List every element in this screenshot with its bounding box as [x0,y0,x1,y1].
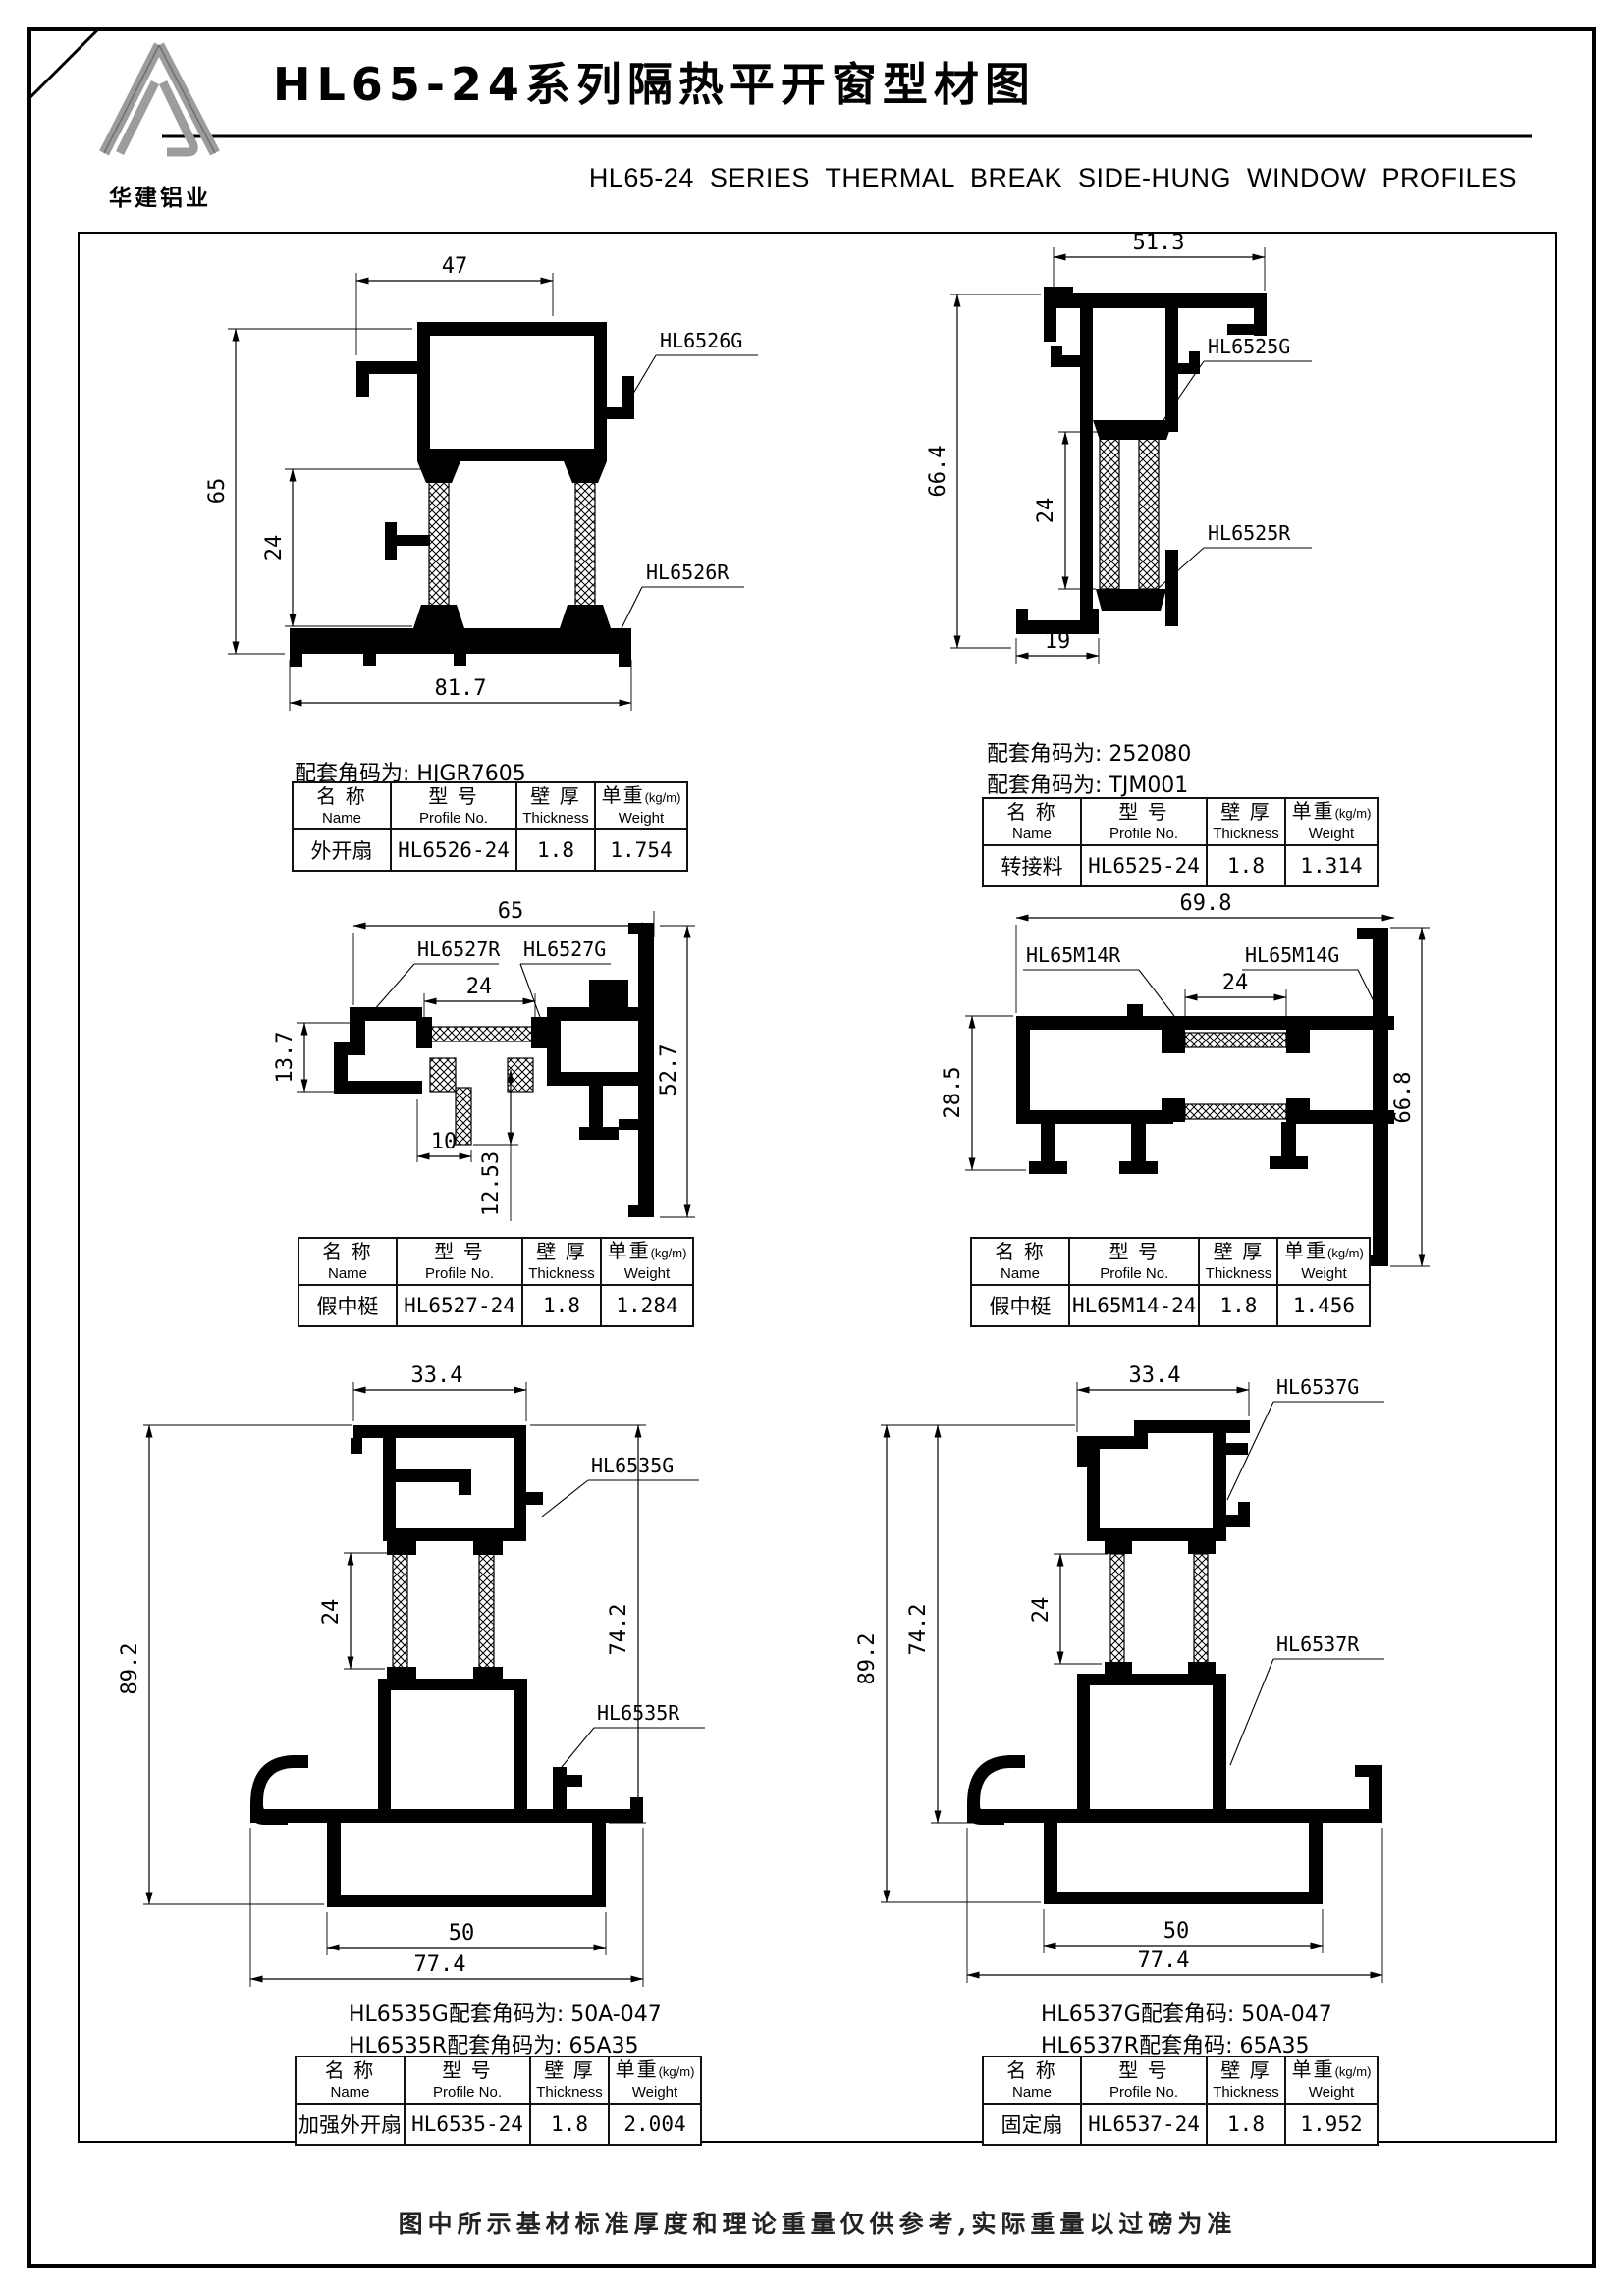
dim-width-bottom: 77.4 [414,1952,466,1977]
drawing-hl6526-24: 47 65 24 81.7 HL6526G HL6526R [137,226,785,736]
label-g: HL6535G [591,1454,674,1477]
dim-thermal: 24 [1034,498,1058,524]
label-g: HL6527G [523,937,606,961]
label-r: HL6525R [1208,521,1291,545]
page-subtitle: HL65-24 SERIES THERMAL BREAK SIDE-HUNG W… [584,163,1517,193]
dim-height-right: 74.2 [607,1604,631,1656]
profile-table-hl6526-24: 名 称Name 型 号Profile No. 壁 厚Thickness 单重(k… [292,781,688,872]
dim-height-left: 65 [205,478,230,505]
profile-row: 外开扇 HL6526-24 1.8 1.754 [293,829,687,871]
drawing-hl6527-24: 65 24 13.7 10 12.53 52.7 HL6527R HL6527G [177,883,746,1235]
drawing-sheet: 华建铝业 HL65-24系列隔热平开窗型材图 HL65-24 SERIES TH… [0,0,1623,2296]
company-name: 华建铝业 [86,179,234,212]
dim-thermal: 24 [466,975,493,999]
dim-bottom-inner: 50 [1163,1919,1190,1944]
label-r: HL65M14R [1026,943,1121,967]
dim-thermal: 24 [262,535,287,561]
dim-width-top: 51.3 [1133,231,1185,255]
profile-row: 加强外开扇 HL6535-24 1.8 2.004 [296,2104,701,2145]
dim-height-left: 89.2 [855,1633,880,1685]
dim-width-top: 69.8 [1180,891,1232,916]
dim-width-bottom: 77.4 [1138,1949,1190,1973]
profile-labels: HL6537G HL6537R [1227,1375,1384,1765]
profile-table-hl65m14-24: 名 称Name 型 号Profile No. 壁 厚Thickness 单重(k… [970,1237,1371,1327]
table-header-row: 名 称Name 型 号Profile No. 壁 厚Thickness 单重(k… [971,1238,1370,1285]
dim-stem-drop: 12.53 [479,1151,504,1216]
dim-thermal: 24 [1029,1597,1054,1624]
dim-width-bottom: 19 [1045,629,1071,654]
table-header-row: 名 称Name 型 号Profile No. 壁 厚Thickness 单重(k… [298,1238,693,1285]
label-g: HL6525G [1208,335,1290,358]
drawing-hl6537-24: 33.4 89.2 74.2 24 50 77.4 HL6537G HL6537… [864,1345,1453,1998]
profile-geometry [967,1420,1382,1904]
dim-height-left: 66.4 [926,446,950,498]
dim-width-top: 33.4 [411,1363,463,1388]
dim-height-left: 89.2 [118,1643,142,1695]
dimensions: 33.4 89.2 24 74.2 50 77.4 [118,1363,646,1987]
table-header-row: 名 称Name 型 号Profile No. 壁 厚Thickness 单重(k… [293,782,687,829]
dim-width-bottom: 81.7 [435,676,487,701]
note-corner-code: HL6537G配套角码: 50A-047 [1041,1997,1332,2028]
label-r: HL6527R [417,937,501,961]
page-title: HL65-24系列隔热平开窗型材图 [273,49,1036,114]
dim-height-right: 66.8 [1391,1072,1416,1124]
label-r: HL6535R [597,1701,680,1725]
dim-stem-width: 10 [431,1130,458,1154]
dim-bottom-inner: 50 [449,1921,475,1946]
dim-width-top: 47 [442,254,468,279]
label-r: HL6526R [646,561,730,584]
profile-row: 固定扇 HL6537-24 1.8 1.952 [983,2104,1378,2145]
profile-geometry [1016,928,1394,1266]
profile-row: 假中梃 HL65M14-24 1.8 1.456 [971,1285,1370,1326]
profile-table-hl6525-24: 名 称Name 型 号Profile No. 壁 厚Thickness 单重(k… [982,797,1379,887]
dim-width-top: 65 [498,899,524,924]
table-header-row: 名 称Name 型 号Profile No. 壁 厚Thickness 单重(k… [983,798,1378,845]
profile-labels: HL6526G HL6526R [619,329,758,634]
label-g: HL65M14G [1245,943,1339,967]
profile-table-hl6535-24: 名 称Name 型 号Profile No. 壁 厚Thickness 单重(k… [295,2056,702,2146]
drawing-hl65m14-24: 69.8 24 28.5 66.8 HL65M14R HL65M14G [913,879,1448,1281]
label-g: HL6537G [1276,1375,1359,1399]
dim-height-left: 13.7 [273,1032,298,1084]
label-r: HL6537R [1276,1632,1360,1656]
table-header-row: 名 称Name 型 号Profile No. 壁 厚Thickness 单重(k… [296,2056,701,2104]
table-header-row: 名 称Name 型 号Profile No. 壁 厚Thickness 单重(k… [983,2056,1378,2104]
drawing-hl6535-24: 33.4 89.2 24 74.2 50 77.4 HL6535G HL6535… [98,1345,712,1998]
dim-thermal: 24 [319,1599,344,1626]
profile-row: 转接料 HL6525-24 1.8 1.314 [983,845,1378,886]
footer-disclaimer: 图中所示基材标准厚度和理论重量仅供参考,实际重量以过磅为准 [79,2205,1556,2240]
label-g: HL6526G [660,329,742,352]
drawing-hl6525-24: 51.3 66.4 24 19 HL6525G HL6525R [864,226,1443,717]
profile-labels: HL65M14R HL65M14G [1023,943,1380,1016]
dimensions: 69.8 24 28.5 66.8 [941,891,1430,1266]
dim-thermal: 24 [1222,971,1249,995]
note-corner-code: HL6535G配套角码为: 50A-047 [349,1997,662,2028]
dim-height-left: 28.5 [941,1067,965,1119]
profile-table-hl6527-24: 名 称Name 型 号Profile No. 壁 厚Thickness 单重(k… [298,1237,694,1327]
profile-geometry [290,322,634,667]
note-corner-code: 配套角码为: 252080 [987,736,1191,768]
dim-width-top: 33.4 [1129,1363,1181,1388]
note-corner-code: 配套角码为: TJM001 [987,768,1188,799]
company-logo-icon [86,33,234,181]
dim-height-left2: 74.2 [906,1604,931,1656]
profile-row: 假中梃 HL6527-24 1.8 1.284 [298,1285,693,1326]
dim-height-right: 52.7 [657,1044,681,1096]
profile-geometry [250,1425,643,1907]
profile-table-hl6537-24: 名 称Name 型 号Profile No. 壁 厚Thickness 单重(k… [982,2056,1379,2146]
